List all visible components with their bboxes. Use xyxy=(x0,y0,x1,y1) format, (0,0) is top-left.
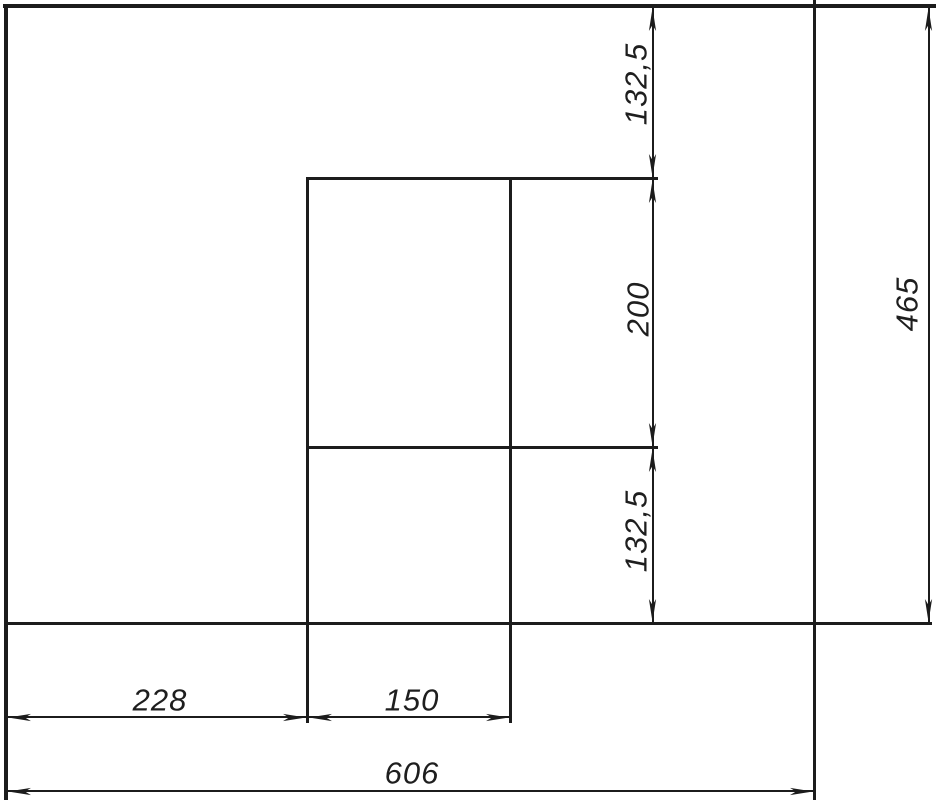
inner-middle-line xyxy=(306,446,658,449)
dim-label-left-segment: 228 xyxy=(133,685,188,716)
dim-label-top-segment: 132,5 xyxy=(621,43,652,126)
dim-label-total-width: 606 xyxy=(385,758,440,789)
outer-bottom-line xyxy=(4,622,932,625)
vertical-dim-line-total xyxy=(928,8,930,624)
dim-label-total-height: 465 xyxy=(892,277,923,332)
technical-drawing-canvas: 132,5 200 132,5 465 228 150 606 xyxy=(0,0,936,800)
dim-label-inner-width: 150 xyxy=(385,685,440,716)
outer-right-line xyxy=(813,0,816,800)
dim-label-bottom-segment: 132,5 xyxy=(621,490,652,573)
inner-top-line xyxy=(306,177,658,180)
inner-left-line xyxy=(306,177,309,723)
inner-right-line xyxy=(509,177,512,723)
outer-left-line xyxy=(4,4,8,800)
outer-top-line xyxy=(3,4,936,8)
dim-label-middle-segment: 200 xyxy=(623,282,654,337)
